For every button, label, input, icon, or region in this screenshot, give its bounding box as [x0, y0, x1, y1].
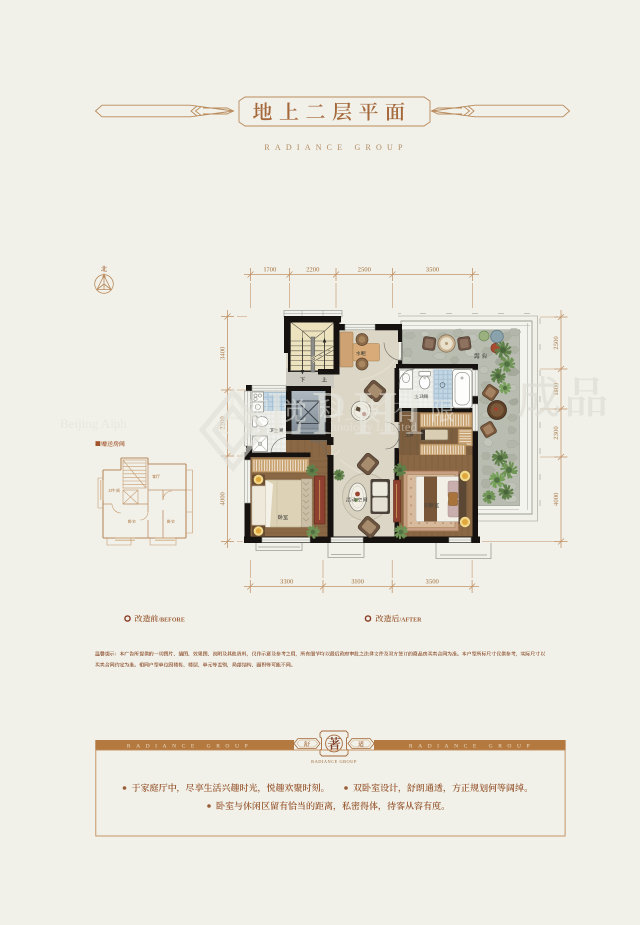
svg-text:卫生间: 卫生间 [107, 488, 120, 494]
svg-text:3100: 3100 [351, 577, 364, 586]
svg-text:卧室: 卧室 [128, 519, 136, 525]
svg-text:地上二层平面: 地上二层平面 [253, 96, 412, 125]
svg-text:4000: 4000 [218, 491, 227, 505]
svg-text:1700: 1700 [264, 265, 277, 274]
svg-text:hnology Limited: hnology Limited [330, 419, 418, 434]
svg-text:成品: 成品 [517, 362, 611, 426]
svg-text:2500: 2500 [551, 336, 560, 350]
svg-text:4000: 4000 [551, 492, 560, 506]
svg-text:适: 适 [358, 739, 364, 748]
svg-text:2300: 2300 [551, 426, 560, 440]
svg-text:改造前/BEFORE: 改造前/BEFORE [134, 614, 185, 625]
svg-text:卧室: 卧室 [167, 519, 175, 525]
svg-text:RADIANCE GROUP: RADIANCE GROUP [127, 744, 253, 750]
svg-text:双卧室设计，舒朗通透，方正规划何等阔绰。: 双卧室设计，舒朗通透，方正规划何等阔绰。 [353, 781, 533, 794]
svg-text:温馨提示：本广告所提供的一切图片、插图、效果图、说明及其他资: 温馨提示：本广告所提供的一切图片、插图、效果图、说明及其他资料，仅作示意及参考之… [95, 651, 545, 658]
svg-text:RADIANCE GROUP: RADIANCE GROUP [409, 744, 535, 750]
svg-text:卧室: 卧室 [278, 514, 288, 521]
svg-text:于家庭厅中，尽享生活兴趣时光，悦趣欢聚时刻。: 于家庭厅中，尽享生活兴趣时光，悦趣欢聚时刻。 [132, 781, 330, 794]
svg-text:■赠送房间: ■赠送房间 [95, 439, 125, 448]
svg-text:买卖合同约定为准。相同户型单位因楼栋、楼层、单元等差别，局部: 买卖合同约定为准。相同户型单位因楼栋、楼层、单元等差别，局部结构、面积等可能不同… [95, 662, 296, 669]
svg-text:活动空间: 活动空间 [346, 497, 368, 504]
svg-text:RADIANCE GROUP: RADIANCE GROUP [264, 143, 407, 152]
svg-text:露台: 露台 [473, 351, 489, 360]
svg-text:次卧室: 次卧室 [424, 502, 439, 509]
svg-text:Beijing Alph: Beijing Alph [60, 416, 127, 431]
svg-text:卧室与休闲区留有恰当的距离，私密得体，待客从容有度。: 卧室与休闲区留有恰当的距离，私密得体，待客从容有度。 [216, 799, 450, 812]
svg-text:RADIANCE GROUP: RADIANCE GROUP [311, 759, 357, 764]
svg-text:3400: 3400 [218, 346, 227, 360]
svg-text:北: 北 [101, 264, 108, 273]
svg-text:3500: 3500 [425, 577, 439, 586]
svg-text:客厅: 客厅 [151, 474, 160, 480]
svg-text:舒: 舒 [303, 739, 311, 748]
svg-text:2500: 2500 [358, 265, 372, 274]
svg-text:2200: 2200 [306, 265, 320, 274]
svg-text:水吧: 水吧 [356, 350, 367, 357]
svg-text:改造后/AFTER: 改造后/AFTER [375, 614, 423, 625]
svg-text:3300: 3300 [280, 577, 294, 586]
svg-text:3500: 3500 [426, 265, 440, 274]
